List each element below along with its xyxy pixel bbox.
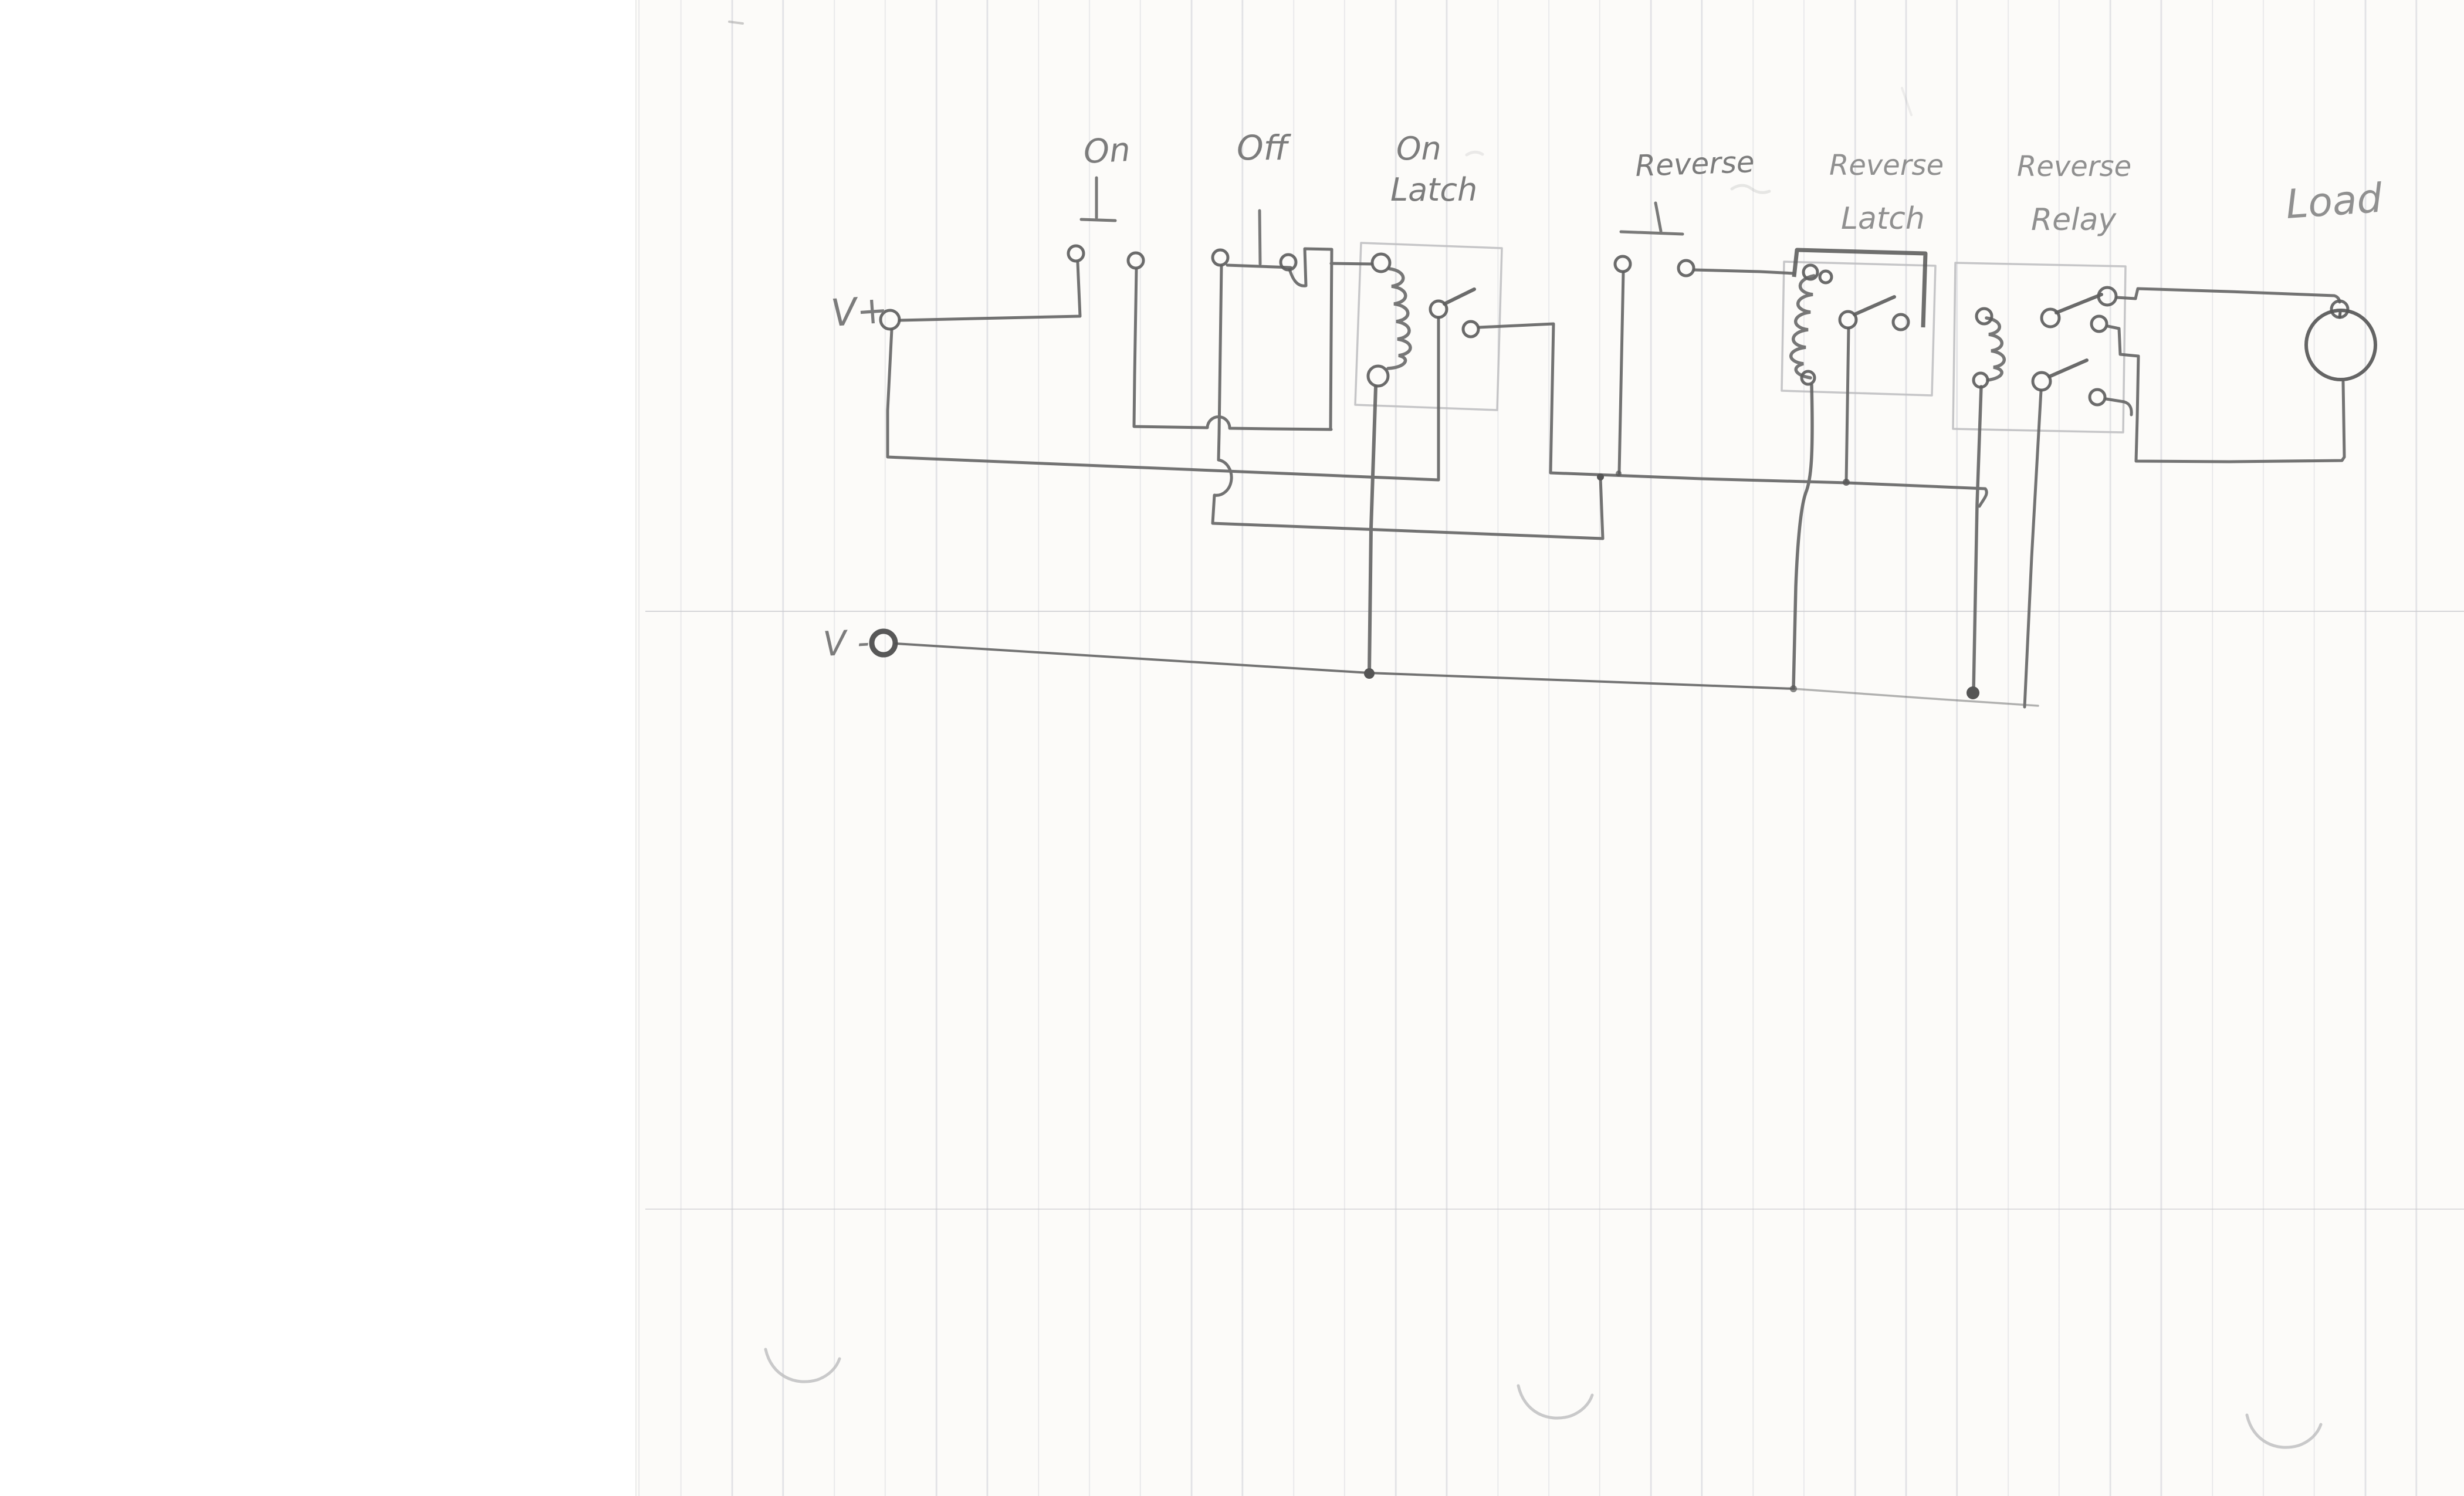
contact2-to-load-bottom-wire bbox=[2108, 326, 2344, 462]
revrelay-contact2-terminal bbox=[2091, 316, 2107, 331]
reverse-relay-coil bbox=[1986, 318, 2004, 380]
reverse-left-terminal bbox=[1615, 256, 1630, 272]
junction-dot bbox=[1967, 686, 1979, 699]
vplus-to-on-wire bbox=[899, 263, 1080, 320]
handwritten-labels: V+ On Off On Latch Reverse Reverse Latch… bbox=[822, 128, 2384, 664]
reverse-button-cap bbox=[1621, 232, 1683, 234]
v-minus-terminal bbox=[872, 631, 895, 655]
vminus-rail-wire-faint bbox=[1793, 689, 2038, 706]
scanned-page: V+ On Off On Latch Reverse Reverse Latch… bbox=[0, 0, 2464, 1496]
revrelay-contact4-terminal bbox=[2090, 390, 2105, 405]
on-output-wire bbox=[1134, 269, 1331, 429]
on-button-cap bbox=[1081, 219, 1115, 221]
reverse-label: Reverse bbox=[1634, 145, 1755, 183]
onlatch-fixed-terminal bbox=[1463, 321, 1478, 337]
on-right-terminal bbox=[1128, 253, 1143, 268]
v-plus-label: V+ bbox=[830, 288, 889, 336]
on-latch-label-line1: On bbox=[1396, 130, 1441, 167]
binder-hole-arc bbox=[1518, 1386, 1592, 1418]
contact4-stub-wire bbox=[2106, 399, 2131, 415]
revrelay-pivot2-terminal bbox=[2033, 373, 2050, 390]
vminus-rail-wire bbox=[896, 644, 1793, 689]
relay-coils bbox=[1388, 269, 2004, 380]
revlatch-pivot-feed-wire bbox=[1846, 329, 1849, 482]
revlatch-pivot-terminal bbox=[1840, 312, 1856, 328]
on-latch-label-line2: Latch bbox=[1390, 171, 1477, 208]
reverse-latch-label-line2: Latch bbox=[1841, 201, 1925, 236]
revrelay-coil-top-terminal bbox=[1976, 309, 1992, 324]
load-motor bbox=[2306, 310, 2375, 380]
junction-dot bbox=[1843, 479, 1850, 486]
off-to-coil-jog-wire bbox=[1289, 249, 1332, 429]
pencil-smudge bbox=[1902, 88, 1911, 115]
revlatch-coil-top-knot bbox=[1820, 271, 1832, 283]
revrelay-pivot1-terminal bbox=[2042, 309, 2059, 327]
reverse-right-terminal bbox=[1678, 260, 1694, 276]
off-return-wire bbox=[1213, 266, 1603, 539]
reverse-button-stem bbox=[1656, 203, 1661, 231]
on-latch-coil bbox=[1388, 269, 1410, 368]
reverse-latch-contact-arm bbox=[1854, 297, 1894, 314]
revrelay-coil-bottom-terminal bbox=[1974, 373, 1988, 387]
reverse-relay-contact-arm-2 bbox=[2049, 360, 2087, 377]
pencil-smudge bbox=[1467, 152, 1483, 155]
pencil-smudge bbox=[1732, 185, 1769, 192]
junction-dot bbox=[1597, 473, 1604, 480]
load-label: Load bbox=[2284, 175, 2384, 228]
reverse-latch-label-line1: Reverse bbox=[1829, 149, 1944, 182]
off-label: Off bbox=[1237, 128, 1292, 168]
circuit-sketch: V+ On Off On Latch Reverse Reverse Latch… bbox=[0, 0, 2464, 1496]
load-top-stub bbox=[2340, 312, 2340, 317]
onlatch-pivot-terminal bbox=[1430, 301, 1447, 317]
reverse-latch-coil bbox=[1791, 276, 1814, 378]
pencil-smudge bbox=[729, 22, 743, 23]
junction-dot bbox=[1616, 471, 1622, 476]
wires bbox=[888, 249, 2344, 707]
reverse-relay-contact-arm-1 bbox=[2056, 295, 2101, 313]
on-left-terminal bbox=[1068, 246, 1084, 261]
onlatch-coil-feed-branch bbox=[1331, 263, 1372, 264]
reverse-output-wire bbox=[1694, 270, 1794, 273]
on-label: On bbox=[1082, 131, 1131, 171]
reverse-relay-label-line2: Relay bbox=[2031, 202, 2117, 238]
off-button-stem bbox=[1260, 211, 1260, 264]
revlatch-fixed-terminal bbox=[1893, 314, 1908, 330]
load-circle bbox=[2306, 310, 2375, 380]
onlatch-coil-top-terminal bbox=[1372, 254, 1390, 272]
latch-hold-bus-wire bbox=[1479, 324, 1986, 506]
reverse-relay-label-line1: Reverse bbox=[2017, 150, 2131, 183]
junction-dots bbox=[1364, 471, 1979, 699]
onlatch-coil-bottom-terminal bbox=[1368, 366, 1388, 386]
pivot2-ground-wire bbox=[2025, 391, 2041, 707]
revlatch-coil-ground-wire bbox=[1793, 385, 1812, 688]
reverse-left-feed-wire bbox=[1619, 272, 1623, 473]
junction-dot bbox=[1790, 685, 1797, 692]
pushbutton-actuators bbox=[1081, 178, 1683, 264]
revrelay-coil-ground-wire bbox=[1974, 387, 1981, 692]
on-latch-contact-arm bbox=[1444, 289, 1474, 304]
contact1-to-load-top-wire bbox=[2117, 289, 2340, 302]
binder-hole-arc bbox=[2247, 1415, 2321, 1447]
off-left-terminal bbox=[1213, 250, 1228, 265]
v-minus-label: V - bbox=[822, 622, 870, 664]
binder-hole-arcs bbox=[766, 1349, 2321, 1447]
junction-dot bbox=[1364, 668, 1375, 679]
terminals bbox=[881, 246, 2348, 405]
binder-hole-arc bbox=[766, 1349, 840, 1382]
